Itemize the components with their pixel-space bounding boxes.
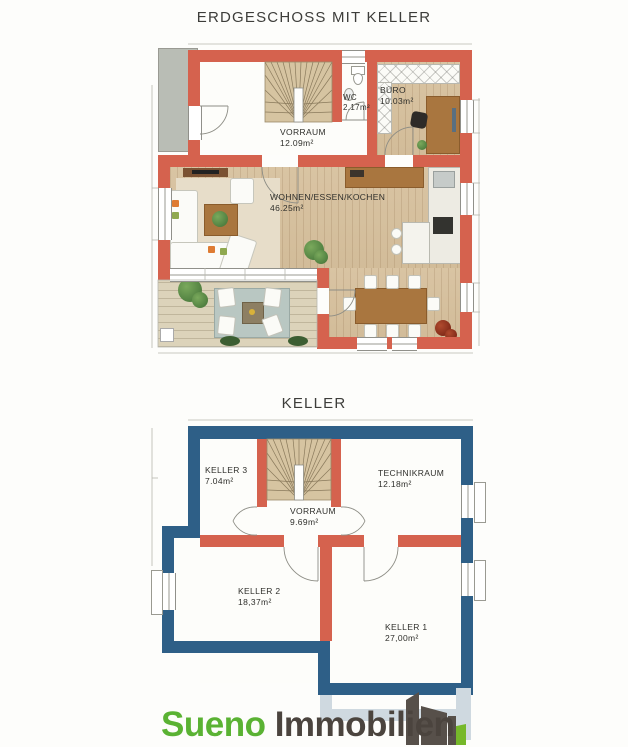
room-area: 9.69m² bbox=[290, 517, 336, 528]
bar-stool-1 bbox=[391, 228, 402, 239]
bm-wall-mid-b bbox=[318, 535, 364, 547]
terrace-glass-front bbox=[170, 268, 317, 282]
kitchen-sink bbox=[433, 171, 455, 188]
floorplan-page: ERDGESCHOSS MIT KELLER bbox=[0, 0, 628, 747]
room-label-wc: WC 2.17m² bbox=[343, 93, 370, 113]
terrace-planter-box bbox=[160, 328, 174, 342]
entrance-door-gap bbox=[188, 106, 202, 140]
bm-wall-bottom-k2 bbox=[162, 641, 330, 653]
tv bbox=[192, 170, 219, 174]
bm-lightwell-right-1 bbox=[474, 482, 486, 523]
room-name: VORRAUM bbox=[280, 127, 326, 138]
bm-wall-k1-k2-divider bbox=[320, 547, 332, 641]
terrace-shrub-2 bbox=[288, 336, 308, 346]
room-name: BÜRO bbox=[380, 85, 414, 96]
gf-wall-terrace-stub bbox=[158, 268, 170, 280]
room-label-keller2: KELLER 2 18,37m² bbox=[238, 586, 281, 607]
gf-wall-dining-b bbox=[317, 314, 329, 349]
kitchen-island bbox=[402, 222, 430, 264]
dining-table bbox=[355, 288, 427, 324]
room-label-wohnen: WOHNEN/ESSEN/KOCHEN 46.25m² bbox=[270, 192, 385, 213]
logo-wordmark: Sueno Immobilien bbox=[161, 705, 454, 745]
dining-chair bbox=[386, 275, 399, 289]
office-plant bbox=[417, 140, 427, 150]
room-area: 18,37m² bbox=[238, 597, 281, 608]
office-wardrobe-top bbox=[377, 64, 460, 84]
room-name: KELLER 2 bbox=[238, 586, 281, 597]
bar-stool-2 bbox=[391, 244, 402, 255]
pillow-green-1 bbox=[172, 212, 179, 219]
terrace-plant-large-2 bbox=[192, 292, 208, 308]
logo-building-green bbox=[456, 724, 466, 745]
room-name: KELLER 3 bbox=[205, 465, 248, 476]
gf-wall-top bbox=[188, 50, 472, 62]
bm-wall-stair-left bbox=[257, 439, 267, 507]
gf-wall-stair-right bbox=[332, 62, 342, 122]
room-name: TECHNIKRAUM bbox=[378, 468, 444, 479]
bm-floor-keller2-ext bbox=[174, 538, 200, 641]
terrace-chair bbox=[217, 315, 236, 336]
logo-brand-second: Immobilien bbox=[275, 705, 455, 744]
bm-wall-step-out bbox=[162, 526, 200, 538]
bm-wall-mid-a bbox=[200, 535, 284, 547]
room-area: 27,00m² bbox=[385, 633, 428, 644]
ground-floor-plan: VORRAUM 12.09m² WC 2.17m² BÜRO 10.03m² W… bbox=[150, 40, 485, 362]
room-label-keller1: KELLER 1 27,00m² bbox=[385, 622, 428, 643]
pillow-orange-1 bbox=[172, 200, 179, 207]
window-kitchen bbox=[460, 183, 474, 215]
office-monitor bbox=[452, 108, 456, 132]
dining-chair bbox=[364, 324, 377, 338]
bm-staircase bbox=[267, 439, 331, 500]
terrace-chair bbox=[263, 287, 282, 308]
room-name: WOHNEN/ESSEN/KOCHEN bbox=[270, 192, 385, 203]
terrace-chair bbox=[217, 287, 236, 308]
gf-wall-divider-a bbox=[158, 155, 262, 167]
logo: Sueno Immobilien bbox=[0, 665, 628, 747]
dining-chair bbox=[386, 324, 399, 338]
bm-wall-top bbox=[188, 426, 473, 439]
gf-wall-left-lower-a bbox=[158, 167, 170, 188]
bm-wall-mid-c bbox=[398, 535, 461, 547]
bm-window-right-1 bbox=[461, 485, 475, 518]
room-area: 46.25m² bbox=[270, 203, 385, 214]
cooktop bbox=[433, 217, 453, 234]
room-label-buero: BÜRO 10.03m² bbox=[380, 85, 414, 106]
terrace-shrub-1 bbox=[220, 336, 240, 346]
pillow-green-2 bbox=[220, 248, 227, 255]
bm-lightwell-right-2 bbox=[474, 560, 486, 601]
window-top bbox=[342, 50, 365, 64]
room-label-bm-vorraum: VORRAUM 9.69m² bbox=[290, 506, 336, 527]
room-name: KELLER 1 bbox=[385, 622, 428, 633]
room-label-keller3: KELLER 3 7.04m² bbox=[205, 465, 248, 486]
room-area: 12.09m² bbox=[280, 138, 326, 149]
office-chair bbox=[410, 111, 429, 130]
armchair bbox=[230, 178, 254, 204]
room-area: 2.17m² bbox=[343, 103, 370, 113]
room-name: WC bbox=[343, 93, 370, 103]
room-area: 12.18m² bbox=[378, 479, 444, 490]
bm-window-right-2 bbox=[461, 563, 475, 596]
room-label-technikraum: TECHNIKRAUM 12.18m² bbox=[378, 468, 444, 489]
gf-wall-bottom-a bbox=[329, 337, 357, 349]
dining-chair bbox=[427, 297, 440, 311]
room-area: 10.03m² bbox=[380, 96, 414, 107]
bm-window-left bbox=[162, 573, 176, 610]
bm-wall-left-lower-a bbox=[162, 538, 174, 573]
kitchen-appliance bbox=[350, 170, 364, 177]
window-dining-right bbox=[460, 283, 474, 312]
gf-wall-divider-b bbox=[298, 155, 385, 167]
logo-brand-first: Sueno bbox=[161, 705, 265, 744]
gf-wall-dining-a bbox=[317, 268, 329, 288]
bm-wall-left-upper bbox=[188, 439, 200, 526]
gf-staircase bbox=[265, 62, 332, 122]
gf-wall-divider-c bbox=[413, 155, 460, 167]
basement-title: KELLER bbox=[0, 395, 628, 412]
bm-wall-right-a bbox=[461, 426, 473, 485]
dining-chair bbox=[408, 324, 421, 338]
window-dining-bottom-1 bbox=[357, 337, 387, 351]
gf-wall-bottom-c bbox=[417, 337, 472, 349]
window-dining-bottom-2 bbox=[392, 337, 417, 351]
ground-floor-title: ERDGESCHOSS MIT KELLER bbox=[0, 9, 628, 26]
room-area: 7.04m² bbox=[205, 476, 248, 487]
window-office bbox=[460, 100, 474, 133]
bm-lightwell-left bbox=[151, 570, 163, 615]
room-label-vorraum: VORRAUM 12.09m² bbox=[280, 127, 326, 148]
terrace-table-decor bbox=[249, 309, 255, 315]
pillow-orange-2 bbox=[208, 246, 215, 253]
window-living-left bbox=[158, 188, 172, 240]
dining-chair bbox=[343, 297, 356, 311]
bm-wall-right-b bbox=[461, 518, 473, 563]
dining-chair bbox=[408, 275, 421, 289]
indoor-plant-small bbox=[314, 250, 328, 264]
coffee-table-plant bbox=[212, 211, 228, 227]
dining-chair bbox=[364, 275, 377, 289]
room-name: VORRAUM bbox=[290, 506, 336, 517]
bm-wall-stair-right bbox=[331, 439, 341, 507]
